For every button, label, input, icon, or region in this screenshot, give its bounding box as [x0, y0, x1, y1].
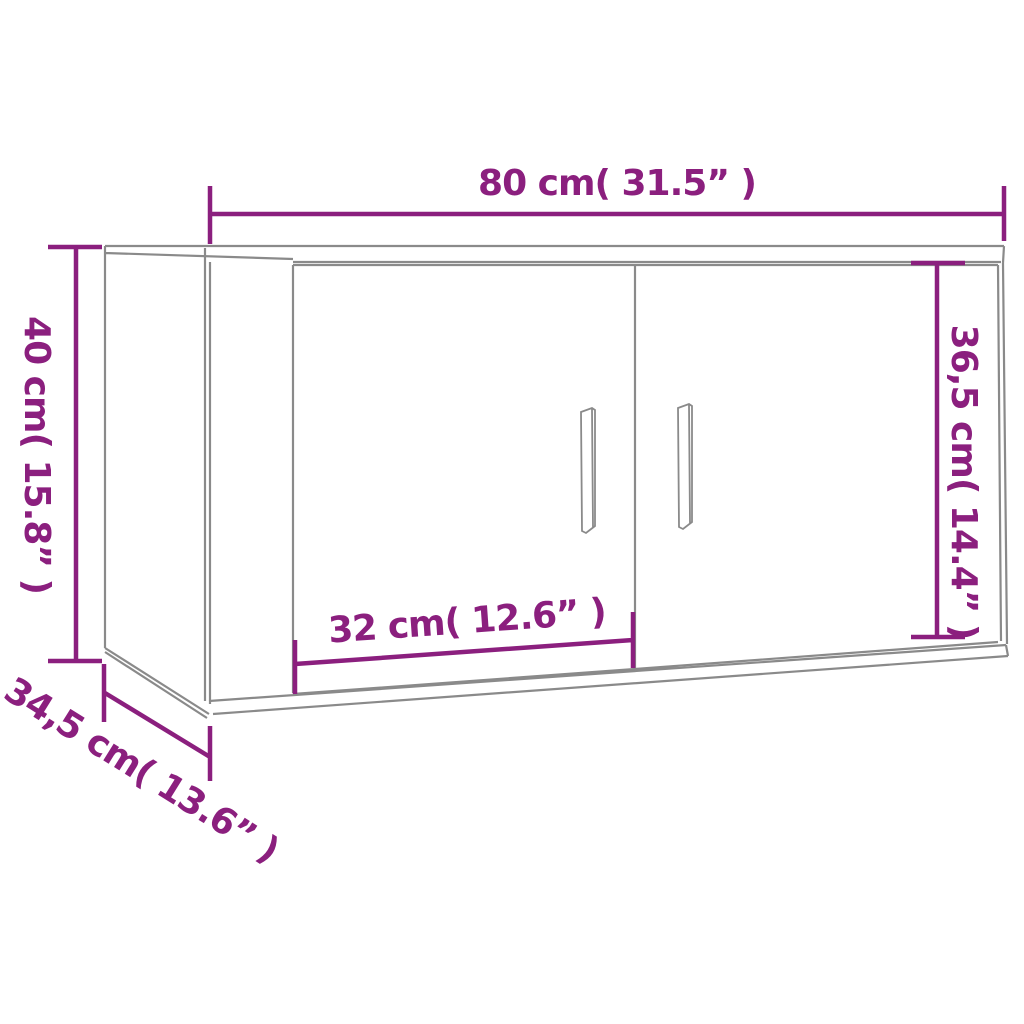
cabinet-dimension-drawing: [0, 0, 1024, 1024]
cabinet-door-lines: [205, 248, 1001, 704]
dim-label-height: 40 cm( 15.8” ): [18, 316, 54, 594]
door-handle-right: [678, 404, 692, 529]
dim-label-door-height: 36,5 cm( 14.4” ): [945, 325, 981, 640]
product-dimension-image: 80 cm( 31.5” ) 40 cm( 15.8” ) 36,5 cm( 1…: [0, 0, 1024, 1024]
door-handle-left: [581, 408, 595, 533]
dim-label-width: 80 cm( 31.5” ): [478, 166, 756, 202]
cabinet-bottom-lines: [105, 642, 1008, 718]
cabinet-top-panel-lines: [105, 246, 1007, 648]
